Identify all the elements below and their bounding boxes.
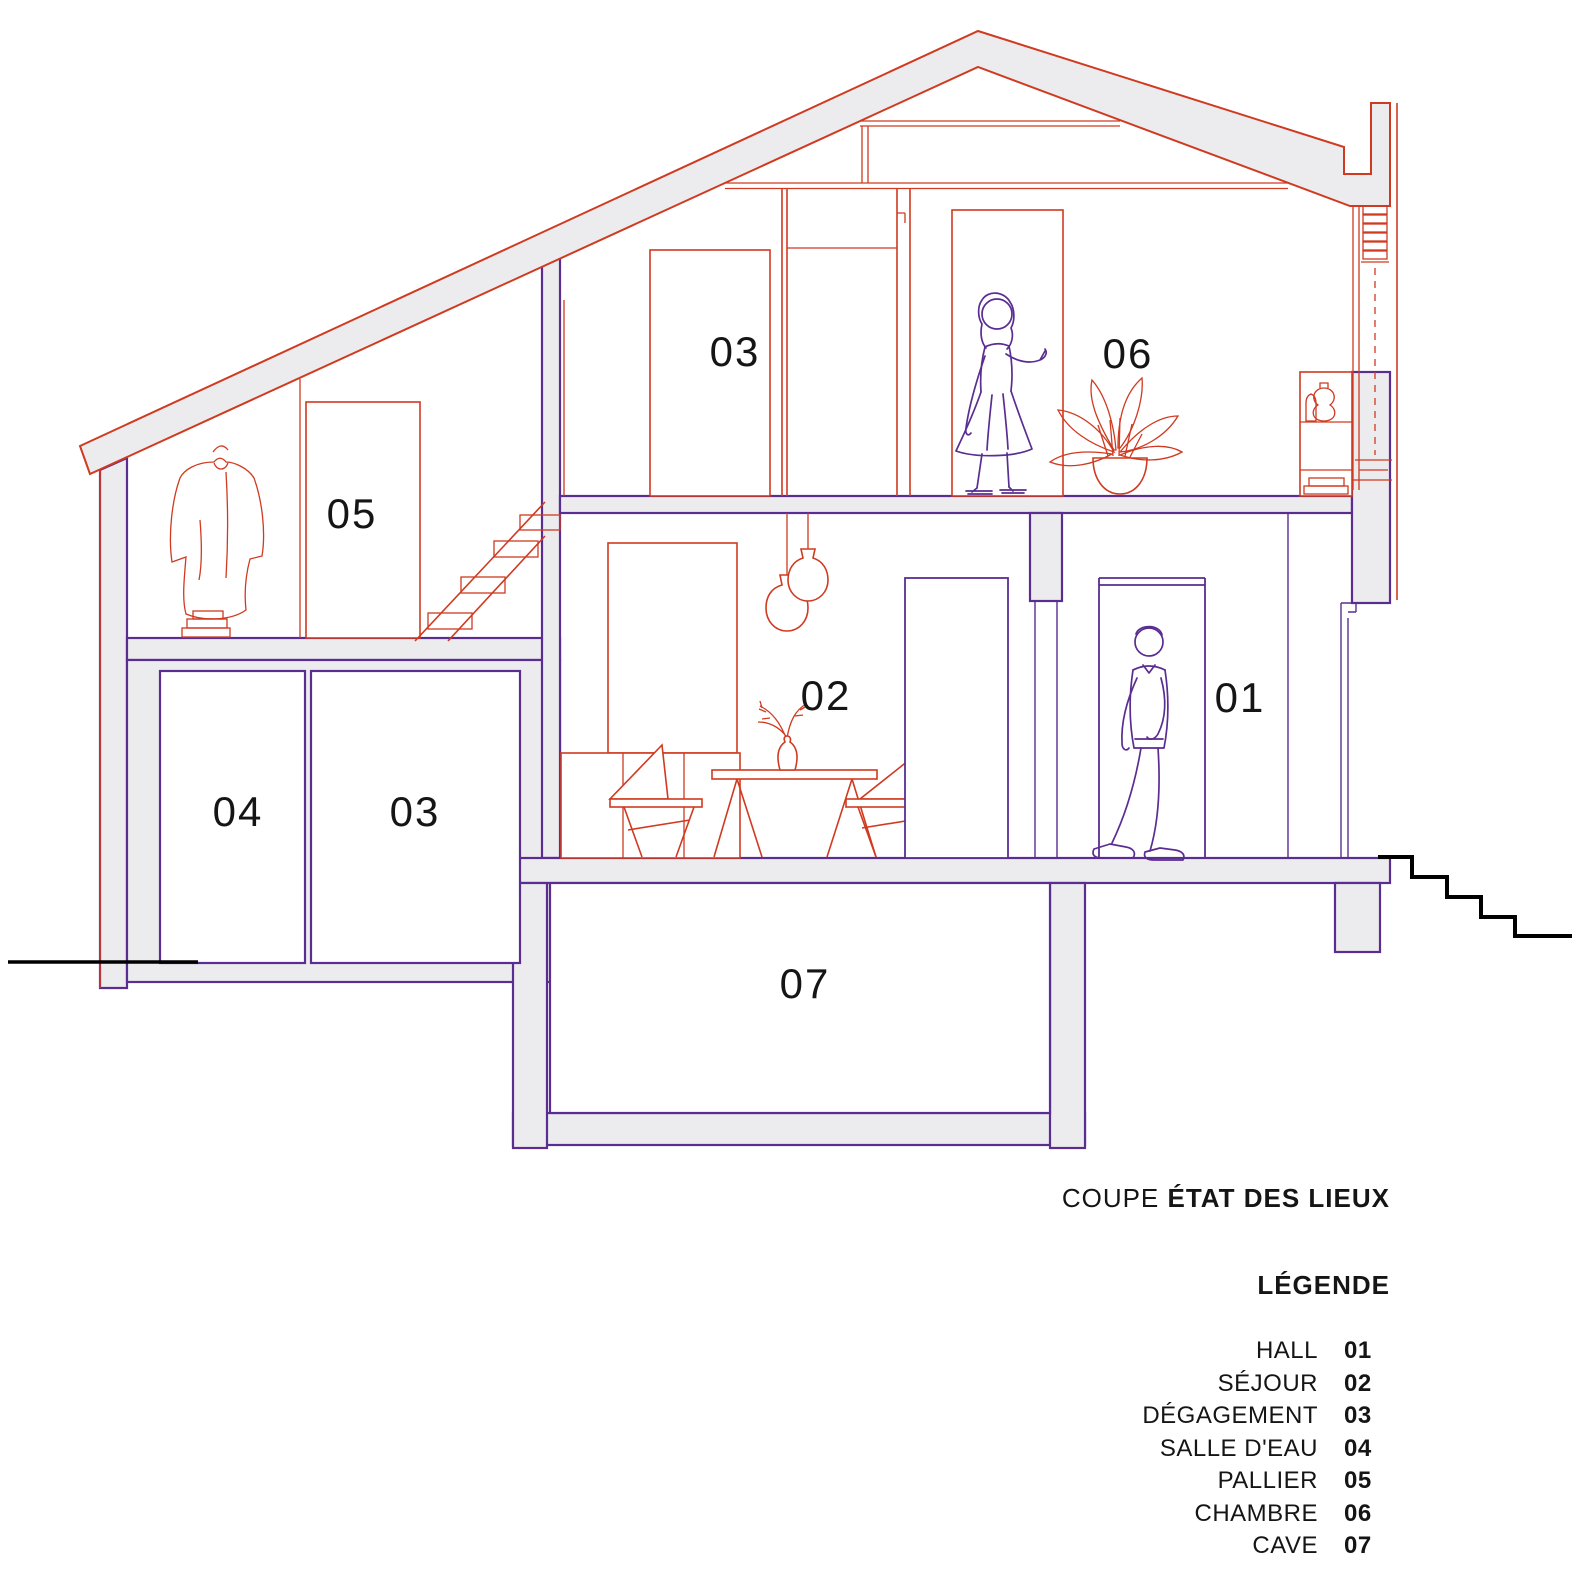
legend-item-code: 07 bbox=[1344, 1530, 1390, 1563]
basement-bottom-slab bbox=[513, 1113, 1085, 1145]
legend-item-code: 02 bbox=[1344, 1368, 1390, 1401]
legend-item-name: DÉGAGEMENT bbox=[1142, 1400, 1318, 1433]
room-label-degagement-upper: 03 bbox=[710, 328, 761, 375]
room-label-chambre: 06 bbox=[1103, 330, 1154, 377]
legend-heading: LÉGENDE bbox=[1062, 1270, 1390, 1301]
partition-upper bbox=[782, 188, 787, 496]
left-exterior-wall bbox=[100, 458, 127, 988]
door-frame-hall bbox=[1099, 578, 1205, 858]
door-jambs-sejour-hall bbox=[1035, 601, 1057, 858]
shelf-unit bbox=[1300, 372, 1352, 496]
legend-item: CAVE 07 bbox=[1062, 1530, 1390, 1563]
plant-pot bbox=[1093, 458, 1147, 494]
hanging-shirt bbox=[170, 446, 263, 619]
title-prefix: COUPE bbox=[1062, 1183, 1168, 1213]
slab-upper-floor bbox=[560, 496, 1352, 513]
legend-item-name: CAVE bbox=[1252, 1530, 1318, 1563]
man-figure bbox=[1093, 627, 1184, 860]
legend-item-code: 05 bbox=[1344, 1465, 1390, 1498]
room-label-pallier: 05 bbox=[327, 490, 378, 537]
room-label-salle-deau: 04 bbox=[213, 788, 264, 835]
room-label-sejour: 02 bbox=[801, 672, 852, 719]
wall-center-full-height bbox=[542, 258, 560, 858]
legend-item-code: 03 bbox=[1344, 1400, 1390, 1433]
foundation-right bbox=[1335, 883, 1380, 952]
legend-item-name: SÉJOUR bbox=[1218, 1368, 1318, 1401]
legend-item: CHAMBRE 06 bbox=[1062, 1498, 1390, 1531]
basement-wall-right bbox=[1050, 883, 1085, 1148]
slab-room05-floor bbox=[127, 638, 560, 660]
architecture-section-sheet: 05 03 06 02 01 04 03 07 COUPE ÉTAT DES L… bbox=[0, 0, 1594, 1594]
legend-item-name: PALLIER bbox=[1218, 1465, 1318, 1498]
vase-with-branches bbox=[758, 701, 807, 770]
glazing-ground-floor bbox=[1341, 603, 1356, 858]
wall-art-frame bbox=[608, 543, 737, 753]
drawing-title: COUPE ÉTAT DES LIEUX bbox=[1062, 1183, 1390, 1214]
legend-item: DÉGAGEMENT 03 bbox=[1062, 1400, 1390, 1433]
legend-item-code: 01 bbox=[1344, 1335, 1390, 1368]
legend-item: PALLIER 05 bbox=[1062, 1465, 1390, 1498]
legend-item-code: 06 bbox=[1344, 1498, 1390, 1531]
legend-item: SÉJOUR 02 bbox=[1062, 1368, 1390, 1401]
slab-ground-floor bbox=[513, 858, 1390, 883]
title-block: COUPE ÉTAT DES LIEUX LÉGENDE HALL 01 SÉJ… bbox=[1062, 1183, 1390, 1563]
title-emphasis: ÉTAT DES LIEUX bbox=[1168, 1183, 1391, 1213]
legend-item: HALL 01 bbox=[1062, 1335, 1390, 1368]
legend-item-name: CHAMBRE bbox=[1194, 1498, 1318, 1531]
potted-plant bbox=[1050, 378, 1182, 494]
legend-item-name: HALL bbox=[1256, 1335, 1318, 1368]
legend-item-code: 04 bbox=[1344, 1433, 1390, 1466]
legend-item-name: SALLE D'EAU bbox=[1160, 1433, 1318, 1466]
right-exterior-wall-upper bbox=[1352, 372, 1390, 603]
interior-stairs bbox=[415, 502, 560, 641]
room-label-degagement-lower: 03 bbox=[390, 788, 441, 835]
door-sejour bbox=[905, 578, 1008, 858]
room-label-hall: 01 bbox=[1215, 674, 1266, 721]
wall-header-sejour-hall bbox=[1030, 513, 1062, 601]
legend-item: SALLE D'EAU 04 bbox=[1062, 1433, 1390, 1466]
collar-beam bbox=[860, 121, 1120, 183]
room-label-cave: 07 bbox=[780, 960, 831, 1007]
legend-list: HALL 01 SÉJOUR 02 DÉGAGEMENT 03 SALLE D'… bbox=[1062, 1335, 1390, 1563]
exterior-steps bbox=[1378, 857, 1572, 936]
sejour-interior bbox=[561, 513, 938, 858]
pendant-lamps bbox=[766, 513, 828, 631]
